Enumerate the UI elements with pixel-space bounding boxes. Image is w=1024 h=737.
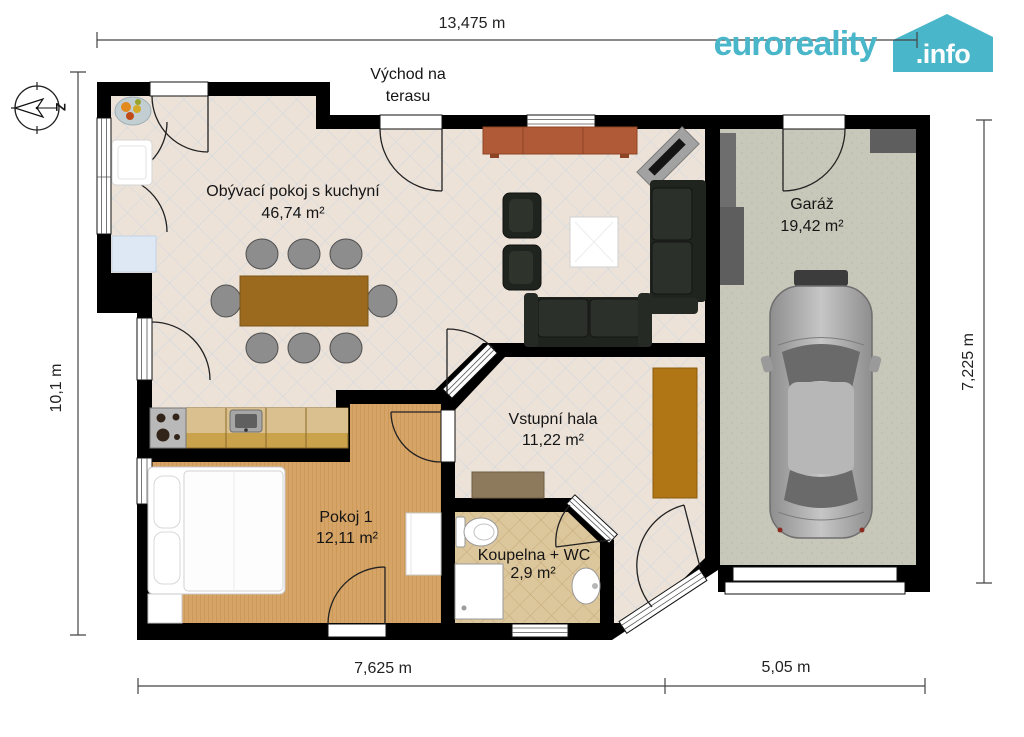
dimension-bottom-left-value: 7,625 m	[354, 659, 412, 679]
armchair-2	[503, 245, 541, 290]
dimension-left-value: 10,1 m	[47, 364, 67, 413]
armchair-1	[503, 193, 541, 238]
sideboard	[483, 127, 637, 158]
room-area-bathroom: 2,9 m²	[510, 564, 555, 584]
dimension-bottom-right-value: 5,05 m	[762, 658, 811, 678]
hall-wardrobe	[653, 368, 697, 498]
side-table	[112, 236, 156, 272]
shower	[455, 564, 503, 619]
bedroom-door	[441, 410, 455, 462]
dimension-top-value: 13,475 m	[439, 14, 506, 34]
top-left-door	[150, 82, 208, 96]
garage-gate	[733, 567, 897, 581]
room-label-garage: Garáž	[790, 195, 834, 215]
room-label-bedroom: Pokoj 1	[319, 508, 372, 528]
dimension-line-left	[70, 72, 86, 635]
floorplan-graphics	[0, 0, 1024, 737]
room-area-bedroom: 12,11 m²	[316, 529, 378, 549]
room-area-garage: 19,42 m²	[780, 217, 843, 237]
car	[760, 270, 882, 538]
toilet	[456, 517, 498, 547]
room-area-hall: 11,22 m²	[522, 431, 584, 451]
bathroom-sink	[572, 568, 600, 604]
bed	[148, 467, 285, 594]
room-label-hall: Vstupní hala	[509, 410, 598, 430]
room-label-living: Obývací pokoj s kuchyní	[206, 182, 379, 202]
bedroom-dresser	[148, 594, 182, 623]
window-armchair	[112, 140, 152, 185]
garage-side-door	[783, 115, 845, 129]
compass-west-label: Z	[51, 103, 69, 112]
stove	[150, 408, 186, 448]
terrace-door	[380, 115, 442, 129]
terrace-exit-label-line2: terasu	[386, 87, 430, 107]
bedroom-exterior-door	[328, 624, 386, 637]
kitchen-counter	[150, 408, 348, 448]
room-label-bathroom: Koupelna + WC	[478, 546, 591, 566]
floorplan-page: 13,475 m 10,1 m 7,225 m 7,625 m 5,05 m V…	[0, 0, 1024, 737]
sofa-right	[648, 180, 706, 314]
terrace-exit-label-line1: Východ na	[370, 65, 446, 85]
bedroom-desk	[406, 513, 441, 575]
room-area-living: 46,74 m²	[261, 204, 324, 224]
coffee-table	[570, 217, 618, 267]
logo-brand-text: euroreality	[714, 23, 877, 66]
hall-bench	[472, 472, 544, 498]
kitchen-sink	[230, 410, 262, 432]
dimension-line-bottom	[138, 678, 925, 694]
dimension-right-value: 7,225 m	[959, 333, 979, 391]
sofa-bottom	[524, 293, 652, 347]
garage-gate-panel	[725, 582, 905, 594]
logo-domain-text: .info	[916, 38, 970, 72]
fruit-table	[115, 97, 151, 125]
